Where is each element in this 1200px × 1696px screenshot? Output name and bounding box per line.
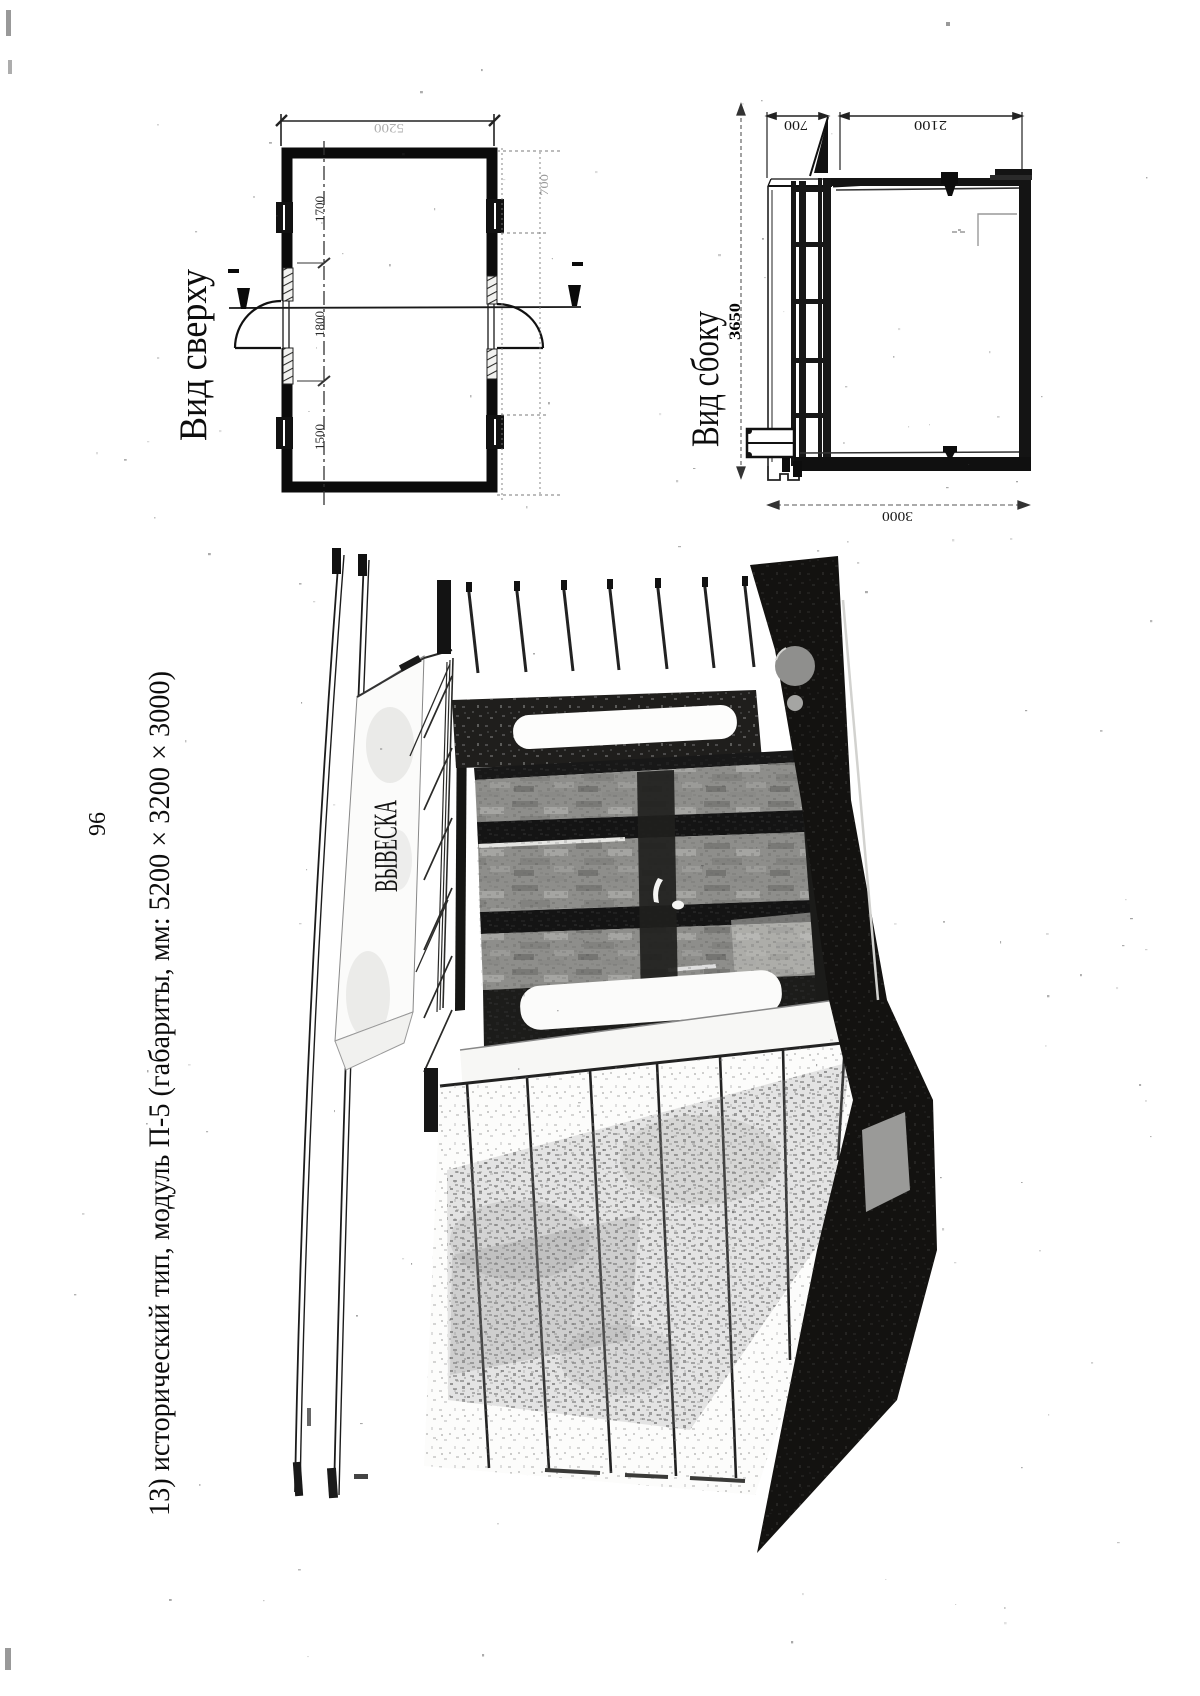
svg-text:1700: 1700 [312,196,327,222]
svg-text:ВЫВЕСКА: ВЫВЕСКА [368,800,405,892]
svg-text:96: 96 [85,812,111,836]
svg-text:.: . [544,257,556,260]
svg-text:1500: 1500 [312,424,327,450]
svg-text:5200: 5200 [374,121,404,136]
svg-text:1800: 1800 [312,311,327,337]
svg-text:Вид сверху: Вид сверху [172,269,215,441]
svg-text:13) исторический тип, модуль П: 13) исторический тип, модуль П-5 (габари… [143,671,176,1516]
svg-text:700: 700 [537,174,551,196]
svg-text:3000: 3000 [882,508,913,523]
svg-text:700: 700 [784,117,808,132]
svg-text:Вид сбоку: Вид сбоку [684,311,727,447]
svg-text:2100: 2100 [914,117,947,132]
